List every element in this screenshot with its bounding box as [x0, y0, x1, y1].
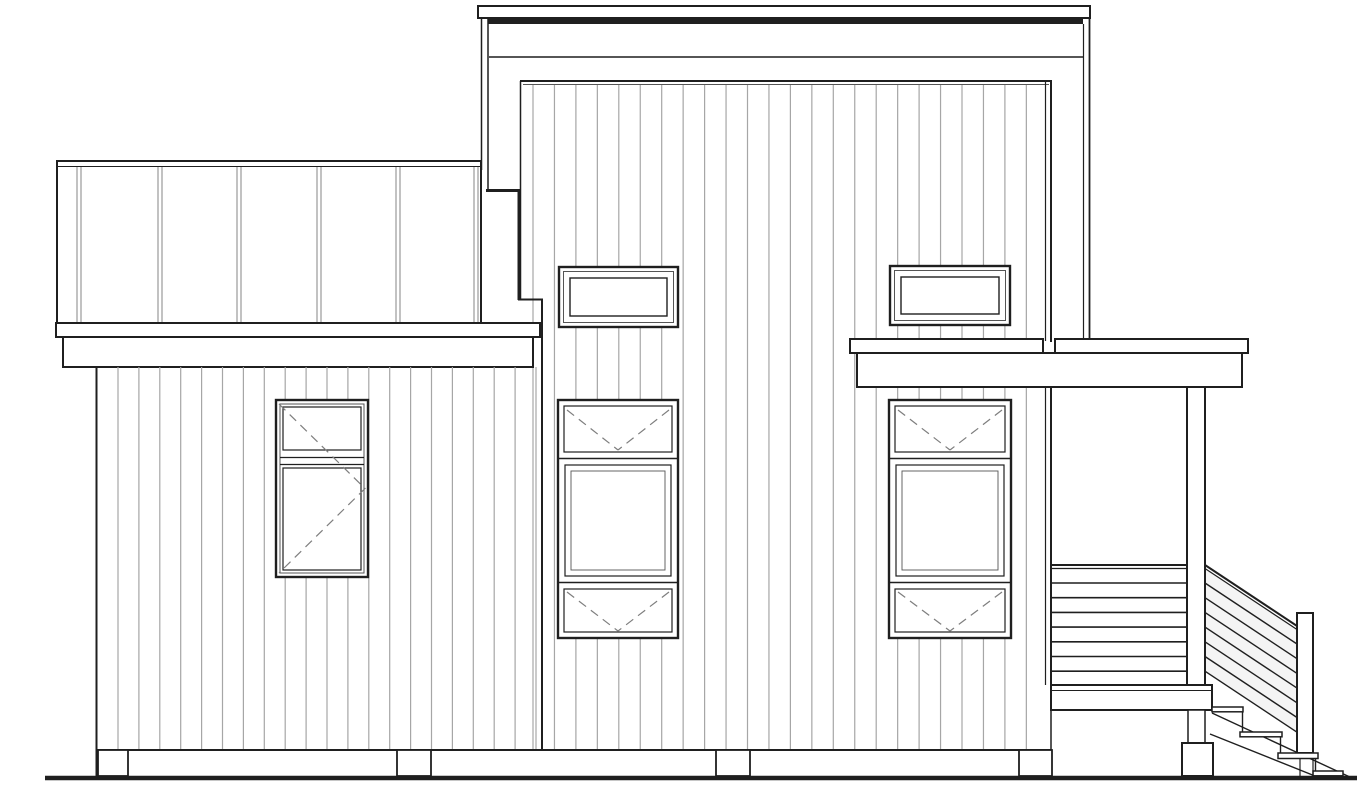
elevation-svg [0, 0, 1357, 800]
porch-roof-band-lower [857, 353, 1242, 387]
tower-cap-shadow-bar [488, 19, 1083, 24]
porch-post [1187, 387, 1205, 685]
porch-guard-rails [1052, 565, 1187, 671]
foundation [45, 750, 1357, 778]
right-awning-stack [889, 400, 1011, 638]
left-roof-panel [57, 161, 481, 323]
porch-under-deck-post [1188, 710, 1205, 743]
center-clerestory-window [559, 267, 678, 327]
porch-roof-band-upper-left [850, 339, 1043, 353]
left-roof-fascia-band-lower [63, 337, 533, 367]
foundation-piers [98, 750, 1052, 776]
left-roof-fascia-band-upper [56, 323, 540, 337]
stair-newel-post [1297, 613, 1313, 753]
porch-deck-band [1051, 685, 1212, 710]
porch-roof-band-upper-right [1055, 339, 1248, 353]
tower-parapet-cap [478, 6, 1090, 18]
porch-foundation-pier [1182, 743, 1213, 776]
center-awning-stack [558, 400, 678, 638]
stair-newel-base [1278, 753, 1318, 759]
left-casement-window [276, 400, 368, 577]
elevation-drawing [0, 0, 1357, 800]
right-clerestory-window [890, 266, 1010, 325]
